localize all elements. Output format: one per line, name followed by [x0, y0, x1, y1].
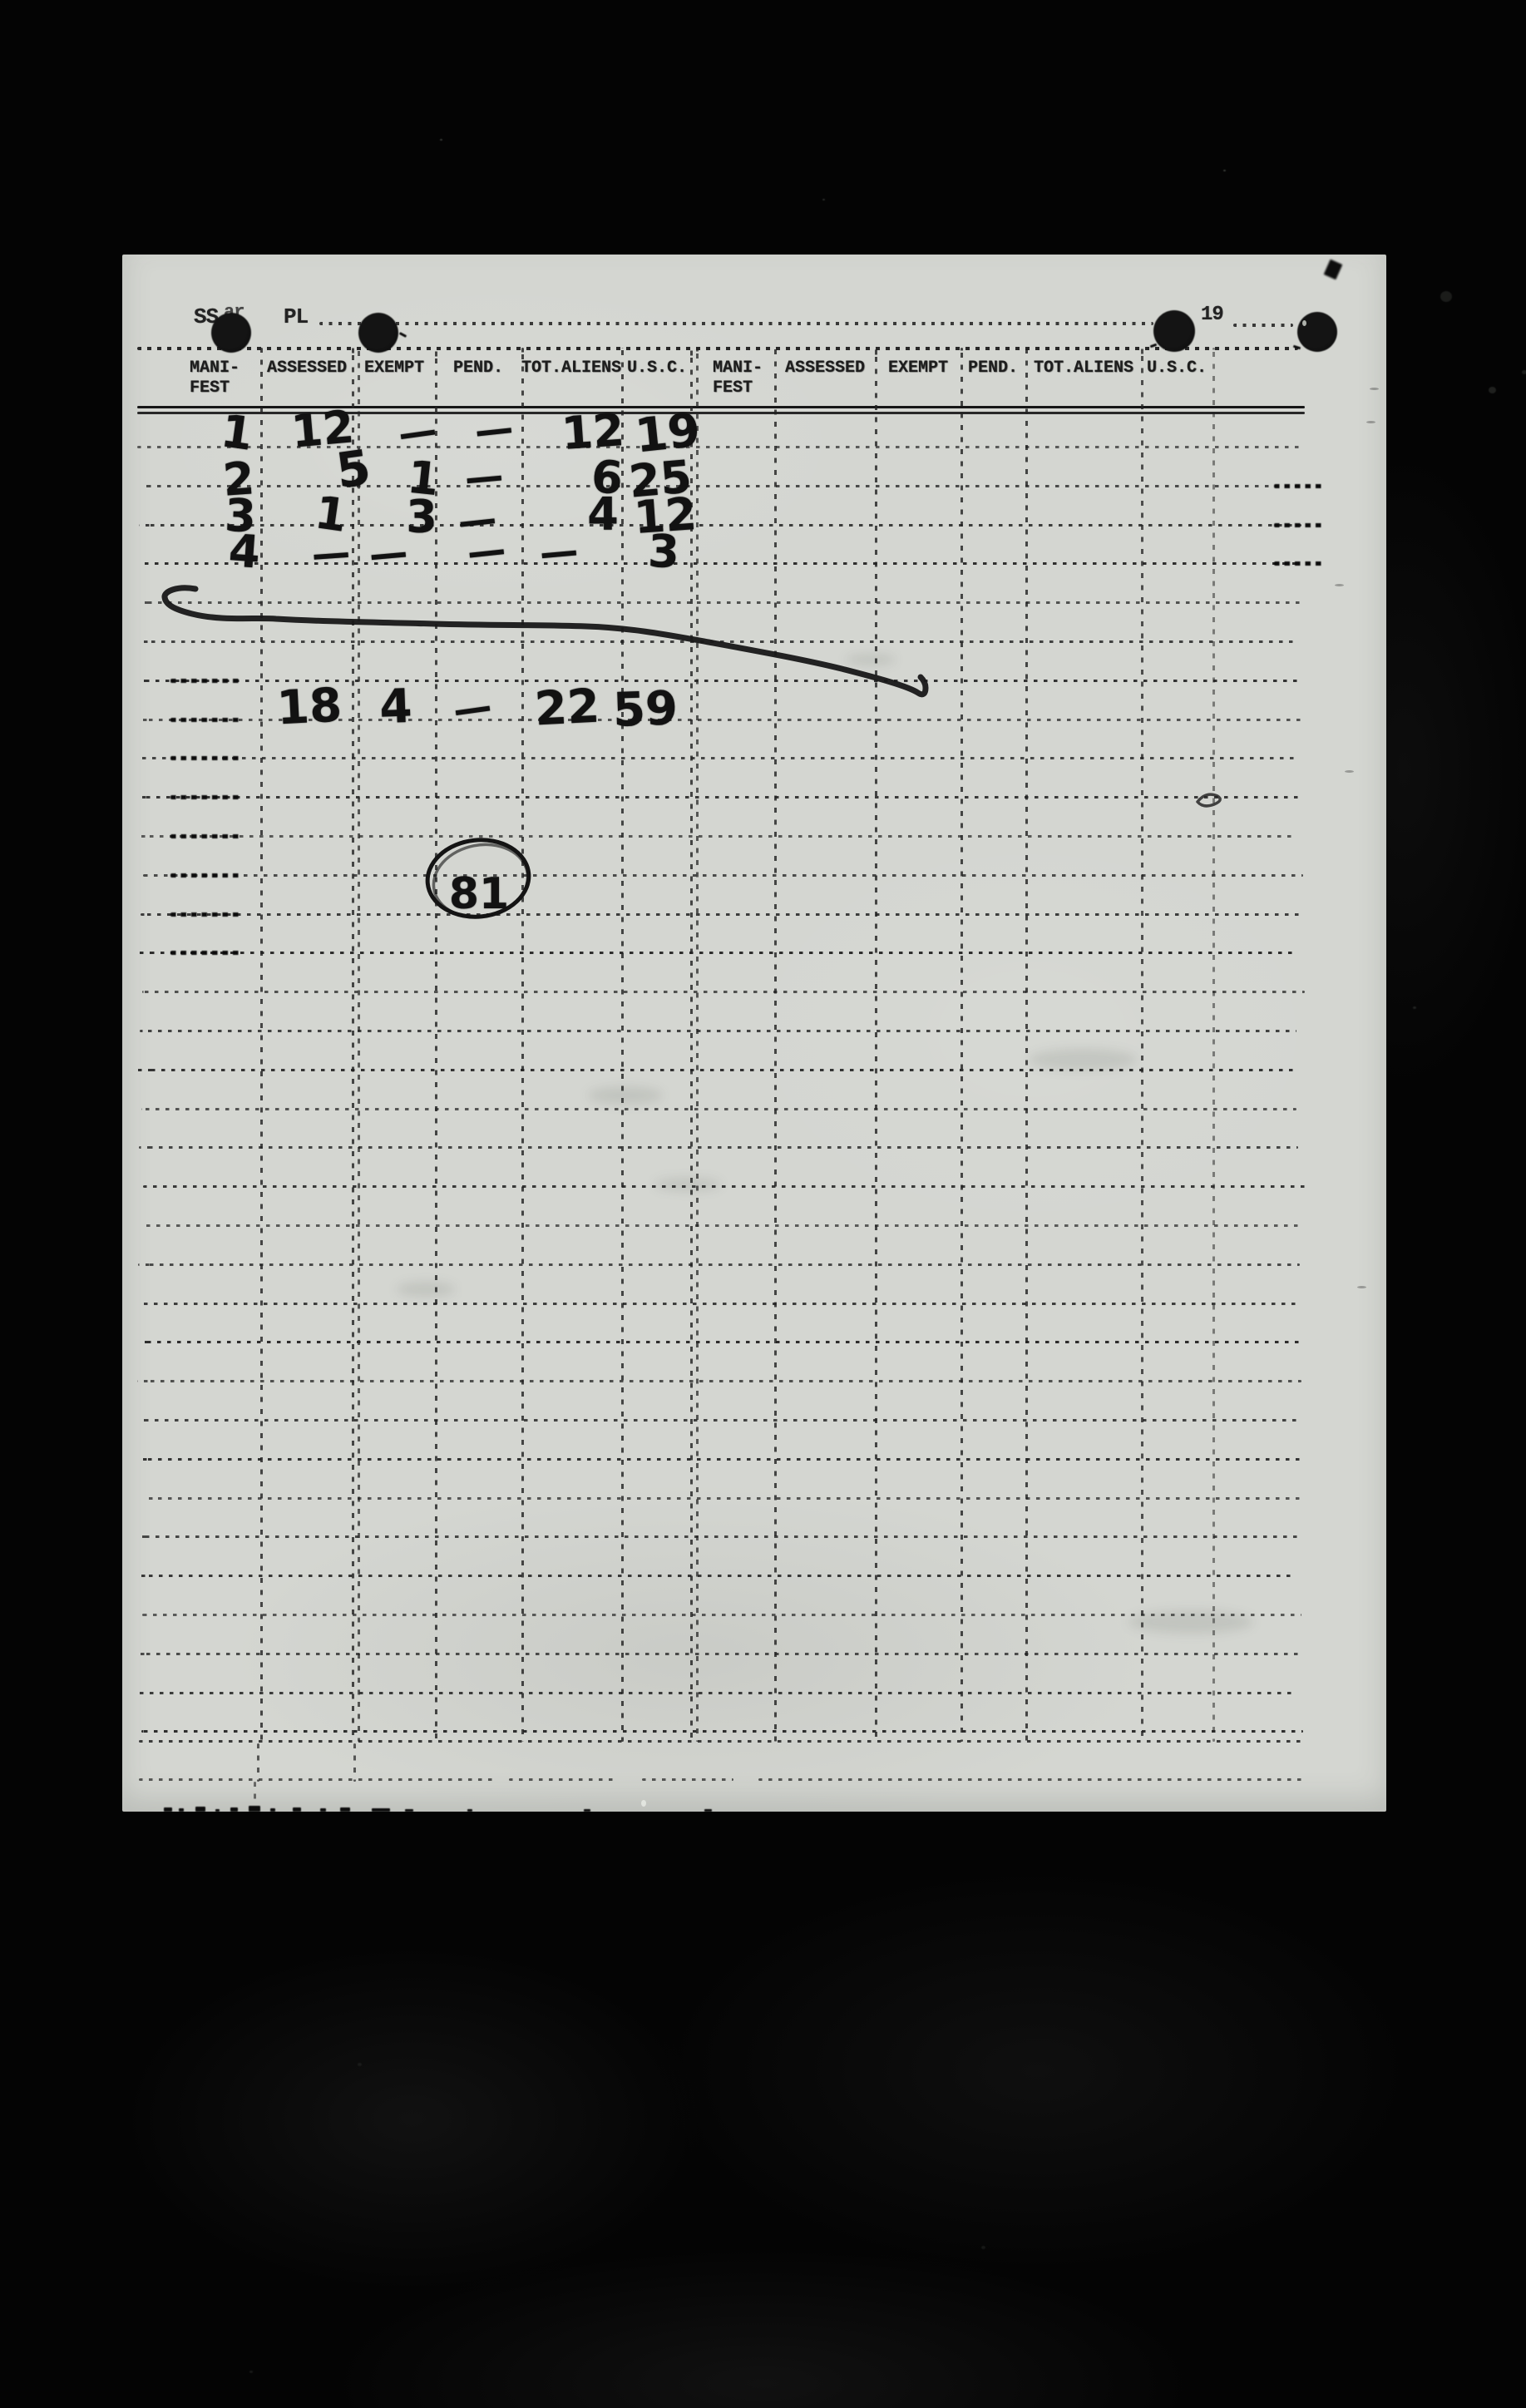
handwritten-cell-value: 3 [406, 491, 437, 543]
edge-serration [215, 1809, 220, 1812]
edge-serration [230, 1807, 238, 1812]
circled-total-value: 81 [449, 869, 509, 919]
document-page: SS ar PL 19 MANI-FESTASSESSEDEXEMPTPEND.… [122, 255, 1386, 1812]
scan-ghosting [846, 654, 896, 665]
handwritten-total-value: — [450, 683, 494, 733]
field-speck [358, 2063, 362, 2066]
edge-serration [340, 1807, 350, 1812]
edge-serration [584, 1809, 590, 1812]
stray-squiggle [1198, 794, 1220, 806]
handwritten-cell-value: 4 [227, 524, 262, 578]
handwritten-total-value: 18 [275, 679, 343, 736]
edge-serration [372, 1808, 390, 1812]
edge-serration [293, 1807, 301, 1812]
paper-speck [1357, 1286, 1366, 1288]
paper-speck [641, 1800, 646, 1807]
handwritten-cell-value: — [463, 452, 506, 501]
strike-through-swoosh [165, 588, 926, 695]
field-speck [981, 2246, 985, 2249]
field-speck [440, 139, 442, 141]
paper-speck [1335, 584, 1344, 586]
handwritten-cell-value: 4 [587, 488, 619, 541]
scan-ghosting [397, 1282, 455, 1297]
edge-serration [467, 1809, 472, 1812]
handwritten-cell-value: — [465, 527, 507, 576]
paper-speck [1370, 388, 1379, 390]
field-speck [1440, 291, 1452, 302]
field-speck [1522, 370, 1526, 374]
scan-ghosting [588, 1086, 663, 1105]
field-speck [249, 2371, 253, 2373]
pencil-marks-layer [122, 255, 1386, 1812]
handwritten-cell-value: 3 [647, 525, 680, 578]
edge-serration [320, 1808, 326, 1812]
handwritten-cell-value: — [310, 529, 352, 576]
scan-ghosting [1128, 1610, 1253, 1634]
handwritten-cell-value: — [472, 405, 515, 454]
scan-ghosting [1029, 1049, 1137, 1070]
edge-serration [704, 1809, 712, 1812]
handwritten-cell-value: — [538, 527, 580, 576]
field-speck [1489, 387, 1496, 393]
handwritten-total-value: 59 [612, 681, 679, 738]
scan-ghosting [654, 1178, 721, 1191]
edge-serration [405, 1809, 413, 1812]
field-speck [1413, 1006, 1416, 1009]
handwritten-cell-value: — [368, 529, 410, 577]
edge-serration [249, 1806, 260, 1812]
field-speck [822, 199, 825, 200]
field-speck [1223, 170, 1226, 171]
edge-serration [270, 1808, 275, 1812]
edge-serration [195, 1807, 205, 1812]
handwritten-cell-value: — [395, 407, 439, 457]
paper-speck [1366, 421, 1375, 423]
handwritten-total-value: 4 [378, 680, 412, 734]
edge-serration [179, 1808, 184, 1812]
edge-serration [164, 1807, 172, 1812]
paper-speck [1345, 770, 1354, 773]
handwritten-total-value: 22 [533, 680, 600, 737]
scan-background: SS ar PL 19 MANI-FESTASSESSEDEXEMPTPEND.… [0, 0, 1526, 2408]
